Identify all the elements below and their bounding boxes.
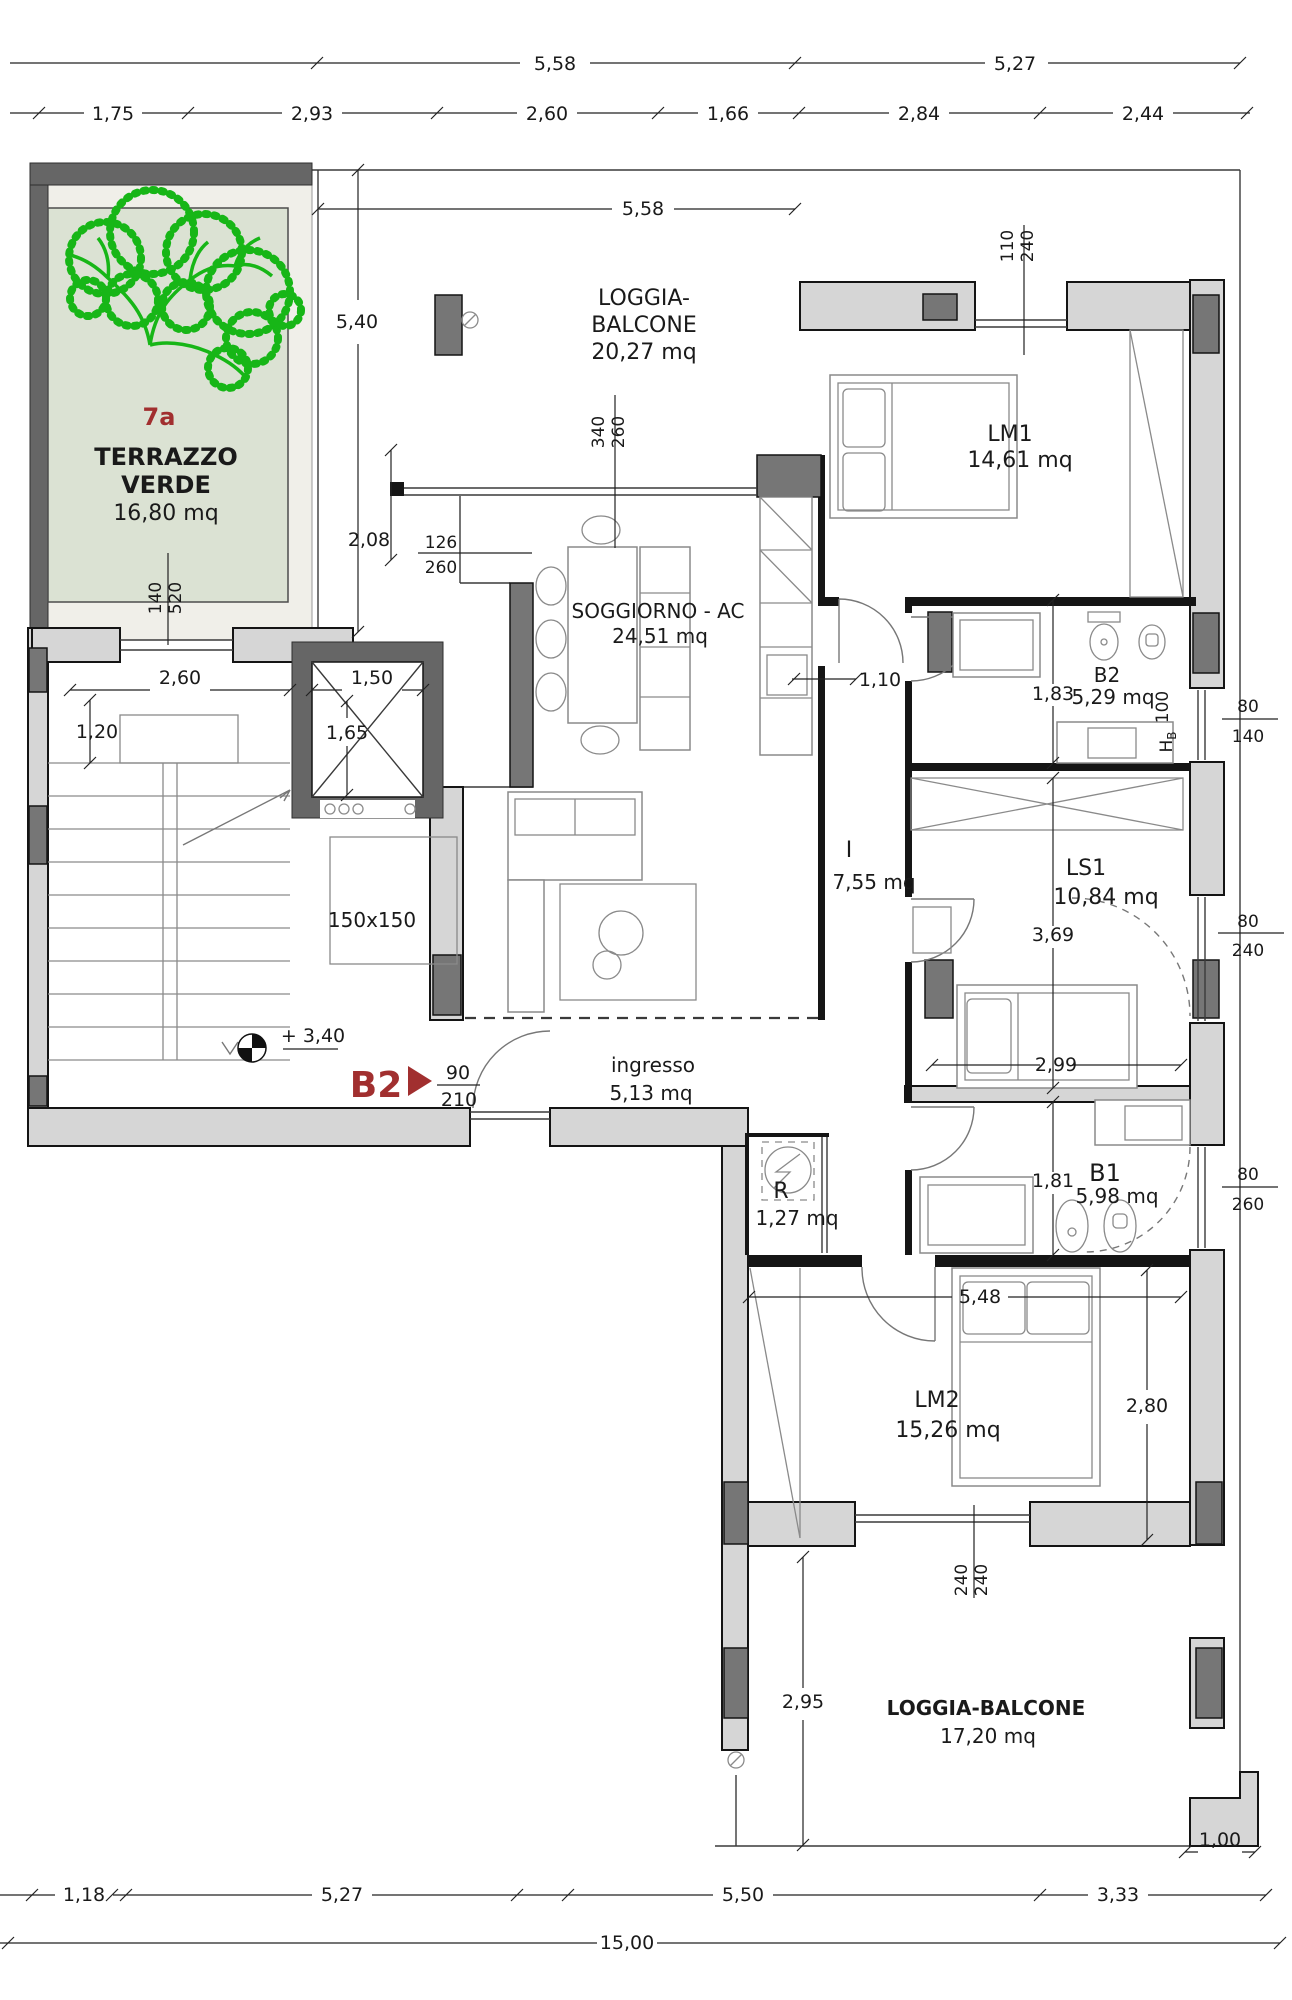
kitchen-units <box>760 497 812 755</box>
entry-door-swing <box>473 1031 550 1108</box>
dim-181: 1,81 <box>1032 1170 1074 1192</box>
bidet-icon <box>1139 625 1165 659</box>
furniture <box>508 330 1183 1538</box>
level-label: + 3,40 <box>281 1025 345 1047</box>
staircase <box>48 715 290 1060</box>
toilet-icon <box>1090 624 1118 660</box>
room-ls1-name: LS1 <box>1066 856 1106 881</box>
room-b1-area: 5,98 mq <box>1075 1184 1158 1208</box>
entry-label: B2 <box>350 1065 403 1106</box>
room-lm1-name: LM1 <box>987 422 1032 447</box>
room-ls1-area: 10,84 mq <box>1053 885 1158 910</box>
floor-plan-page: 5,58 5,27 1,75 2,93 2,60 1,66 2,84 2,44 … <box>0 0 1292 2000</box>
room-terrazzo-area: 16,80 mq <box>113 501 218 526</box>
core-wall-dark <box>510 583 533 787</box>
dim-top2-3: 1,66 <box>707 103 749 125</box>
terrace-wall-left <box>30 185 48 640</box>
drain-icon <box>462 312 744 1846</box>
room-ingresso-name: ingresso <box>611 1053 695 1077</box>
floor-plan-drawing: 5,58 5,27 1,75 2,93 2,60 1,66 2,84 2,44 … <box>0 0 1292 2000</box>
dim-elev-h: 1,65 <box>326 722 368 744</box>
dim-top2-1: 2,93 <box>291 103 333 125</box>
dim-548: 5,48 <box>959 1286 1001 1308</box>
dim-top2-5: 2,44 <box>1122 103 1164 125</box>
lm1-wardrobe <box>1130 330 1183 597</box>
dim-299: 2,99 <box>1035 1054 1077 1076</box>
dim-top-5-58: 5,58 <box>534 53 576 75</box>
dim-bot-0: 1,18 <box>63 1884 105 1906</box>
dim-100: 1,00 <box>1199 1829 1241 1851</box>
win-80-260-a: 80 <box>1237 1165 1259 1185</box>
room-terrazzo-2: VERDE <box>121 471 211 499</box>
room-b2-area: 5,29 mq <box>1071 685 1154 709</box>
win-80-240-a: 80 <box>1237 912 1259 932</box>
dim-369: 3,69 <box>1032 924 1074 946</box>
room-b2-name: B2 <box>1094 663 1120 687</box>
dim-stair-w: 2,60 <box>159 667 201 689</box>
win-340-260-a: 340 <box>589 416 609 448</box>
room-r-name: R <box>773 1179 788 1204</box>
room-corridor-area: 7,55 mq <box>832 870 915 894</box>
room-loggia-bottom-name: LOGGIA-BALCONE <box>887 1696 1086 1720</box>
room-corridor-name: I <box>846 838 853 863</box>
win-110-240-a: 110 <box>998 230 1018 262</box>
room-lm2-name: LM2 <box>914 1388 959 1413</box>
terrace-wall-top <box>30 163 312 185</box>
room-b1-name: B1 <box>1089 1159 1121 1187</box>
entry-door-width: 90 <box>446 1062 470 1084</box>
room-loggia-top-area: 20,27 mq <box>591 340 696 365</box>
win-hb-100: 100 <box>1153 691 1173 723</box>
win-140-520-a: 140 <box>146 582 166 614</box>
win-240-240-a: 240 <box>952 1564 972 1596</box>
room-soggiorno-name: SOGGIORNO - AC <box>572 599 745 623</box>
win-110-240-b: 240 <box>1018 230 1038 262</box>
win-80-260-b: 260 <box>1232 1195 1264 1215</box>
lm1-door <box>839 599 903 663</box>
dim-bot-3: 3,33 <box>1097 1884 1139 1906</box>
lm2-door <box>862 1267 935 1341</box>
room-soggiorno-area: 24,51 mq <box>612 624 708 648</box>
dim-stair-h: 1,20 <box>76 721 118 743</box>
corner-block <box>757 455 821 497</box>
win-80-140-a: 80 <box>1237 697 1259 717</box>
win-80-240-b: 240 <box>1232 941 1264 961</box>
dim-total: 15,00 <box>600 1932 654 1954</box>
dim-loggia-w: 5,58 <box>622 198 664 220</box>
terrazzo-verde <box>30 163 312 640</box>
sofa <box>508 792 696 1012</box>
dim-295: 2,95 <box>782 1691 824 1713</box>
dim-280: 2,80 <box>1126 1395 1168 1417</box>
win-126-260-b: 260 <box>425 558 457 578</box>
dim-bot-2: 5,50 <box>722 1884 764 1906</box>
entry-arrow-icon <box>408 1066 432 1096</box>
landing-size-label: 150x150 <box>328 908 416 932</box>
room-ingresso-area: 5,13 mq <box>609 1081 692 1105</box>
entry-marker <box>408 1066 432 1096</box>
dim-top2-2: 2,60 <box>526 103 568 125</box>
dim-bot-1: 5,27 <box>321 1884 363 1906</box>
room-loggia-bottom-area: 17,20 mq <box>940 1724 1036 1748</box>
win-240-240-b: 240 <box>972 1564 992 1596</box>
b1-door <box>911 1107 974 1170</box>
stair-direction-arrow <box>222 1042 238 1054</box>
win-140-520-b: 520 <box>166 582 186 614</box>
win-80-140-b: 140 <box>1232 727 1264 747</box>
unit-id-label: 7a <box>143 403 176 431</box>
room-r-area: 1,27 mq <box>755 1206 838 1230</box>
room-lm2-area: 15,26 mq <box>895 1418 1000 1443</box>
dim-208: 2,08 <box>348 529 390 551</box>
room-loggia-top-1: LOGGIA- <box>598 286 690 311</box>
room-loggia-top-2: BALCONE <box>591 313 696 338</box>
dim-top-5-27: 5,27 <box>994 53 1036 75</box>
win-126-260-a: 126 <box>425 533 457 553</box>
dim-top2-0: 1,75 <box>92 103 134 125</box>
dim-elev-w: 1,50 <box>351 667 393 689</box>
dim-110: 1,10 <box>859 669 901 691</box>
dim-183: 1,83 <box>1032 683 1074 705</box>
dim-terrace-h: 5,40 <box>336 311 378 333</box>
entry-door-height: 210 <box>441 1089 477 1111</box>
level-marker-icon <box>238 1034 266 1062</box>
loggia-pillar <box>435 295 462 355</box>
win-340-260-b: 260 <box>609 416 629 448</box>
room-terrazzo-1: TERRAZZO <box>94 443 238 471</box>
room-lm1-area: 14,61 mq <box>967 448 1072 473</box>
dim-top2-4: 2,84 <box>898 103 940 125</box>
